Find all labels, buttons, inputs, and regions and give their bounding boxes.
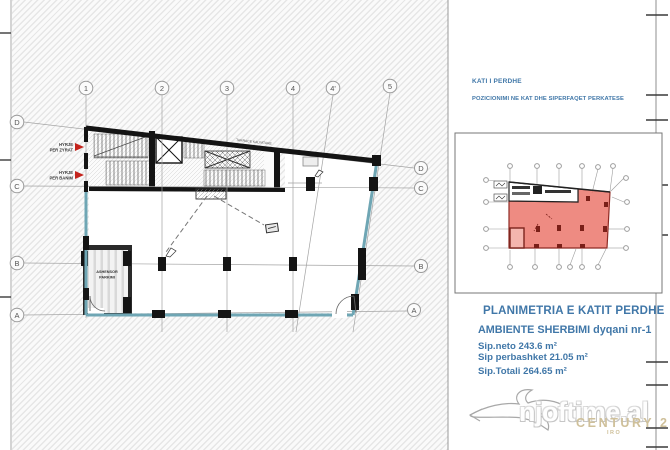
grid-bubble: 5 bbox=[383, 79, 397, 93]
position-label: POZICIONIMI NE KAT DHE SIPERFAQET PERKAT… bbox=[472, 96, 624, 102]
stair-flight bbox=[106, 161, 150, 185]
area-net: Sip.neto 243.6 m² bbox=[478, 341, 557, 352]
entrances: HYRJE PER ZYRAT HYRJE PER BANIM bbox=[50, 142, 85, 181]
grid-bubble: B bbox=[10, 256, 24, 270]
entrance-offices-label: PER ZYRAT bbox=[50, 148, 74, 153]
svg-text:D: D bbox=[418, 164, 424, 173]
grid-bubble: 4' bbox=[326, 81, 340, 95]
key-plan-parking-lift bbox=[510, 228, 524, 248]
grid-bubble: 3 bbox=[220, 81, 234, 95]
svg-text:C: C bbox=[14, 182, 20, 191]
svg-text:D: D bbox=[14, 118, 20, 127]
door-opening bbox=[332, 311, 347, 318]
svg-text:A: A bbox=[411, 306, 416, 315]
plan-title: PLANIMETRIA E KATIT PERDHE bbox=[483, 305, 665, 317]
svg-text:2: 2 bbox=[160, 84, 164, 93]
grid-bubble: D bbox=[10, 115, 24, 129]
entrance-housing-label: HYRJE bbox=[59, 170, 73, 175]
svg-text:C: C bbox=[418, 184, 424, 193]
plan-marker bbox=[266, 223, 279, 233]
stair-flight bbox=[204, 170, 265, 186]
grid-bubble: 2 bbox=[155, 81, 169, 95]
vestibule bbox=[196, 189, 226, 199]
grid-bubble: 4 bbox=[286, 81, 300, 95]
floor-plan-drawing: TARRACE KALIMTARE bbox=[0, 0, 670, 450]
grid-bubble: A bbox=[10, 308, 24, 322]
entrance-housing-label: PER BANIM bbox=[50, 176, 74, 181]
grid-bubble: B bbox=[415, 260, 428, 273]
key-plan bbox=[455, 133, 662, 293]
drawing-sheet: TARRACE KALIMTARE bbox=[0, 0, 670, 450]
svg-text:B: B bbox=[14, 259, 19, 268]
svg-text:B: B bbox=[418, 262, 423, 271]
grid-bubble: D bbox=[415, 162, 428, 175]
parking-lift-room: ASHENSOR PARKIMI bbox=[81, 246, 131, 316]
parking-lift-label: PARKIMI bbox=[99, 276, 115, 280]
entrance-arrow-icon bbox=[75, 143, 84, 151]
svg-text:4: 4 bbox=[291, 84, 295, 93]
watermark-brand-sub: IRO bbox=[607, 430, 621, 436]
svg-text:A: A bbox=[14, 311, 19, 320]
area-total: Sip.Totali 264.65 m² bbox=[478, 366, 567, 377]
svg-text:4': 4' bbox=[330, 84, 336, 93]
svg-text:5: 5 bbox=[388, 82, 392, 91]
grid-bubble: 1 bbox=[79, 81, 93, 95]
grid-bubble: C bbox=[415, 182, 428, 195]
grid-bubble: C bbox=[10, 179, 24, 193]
svg-text:3: 3 bbox=[225, 84, 229, 93]
floor-label: KATI I PERDHE bbox=[472, 78, 522, 85]
parking-lift-label: ASHENSOR bbox=[96, 270, 118, 274]
plan-subtitle: AMBIENTE SHERBIMI dyqani nr-1 bbox=[478, 324, 651, 336]
svg-text:1: 1 bbox=[84, 84, 88, 93]
area-shared: Sip perbashket 21.05 m² bbox=[478, 352, 588, 363]
wall-unit bbox=[303, 157, 318, 166]
grid-bubble: A bbox=[408, 304, 421, 317]
watermark-brand: CENTURY 21 bbox=[576, 416, 670, 430]
entrance-arrow-icon bbox=[75, 171, 84, 179]
entrance-offices-label: HYRJE bbox=[59, 142, 73, 147]
